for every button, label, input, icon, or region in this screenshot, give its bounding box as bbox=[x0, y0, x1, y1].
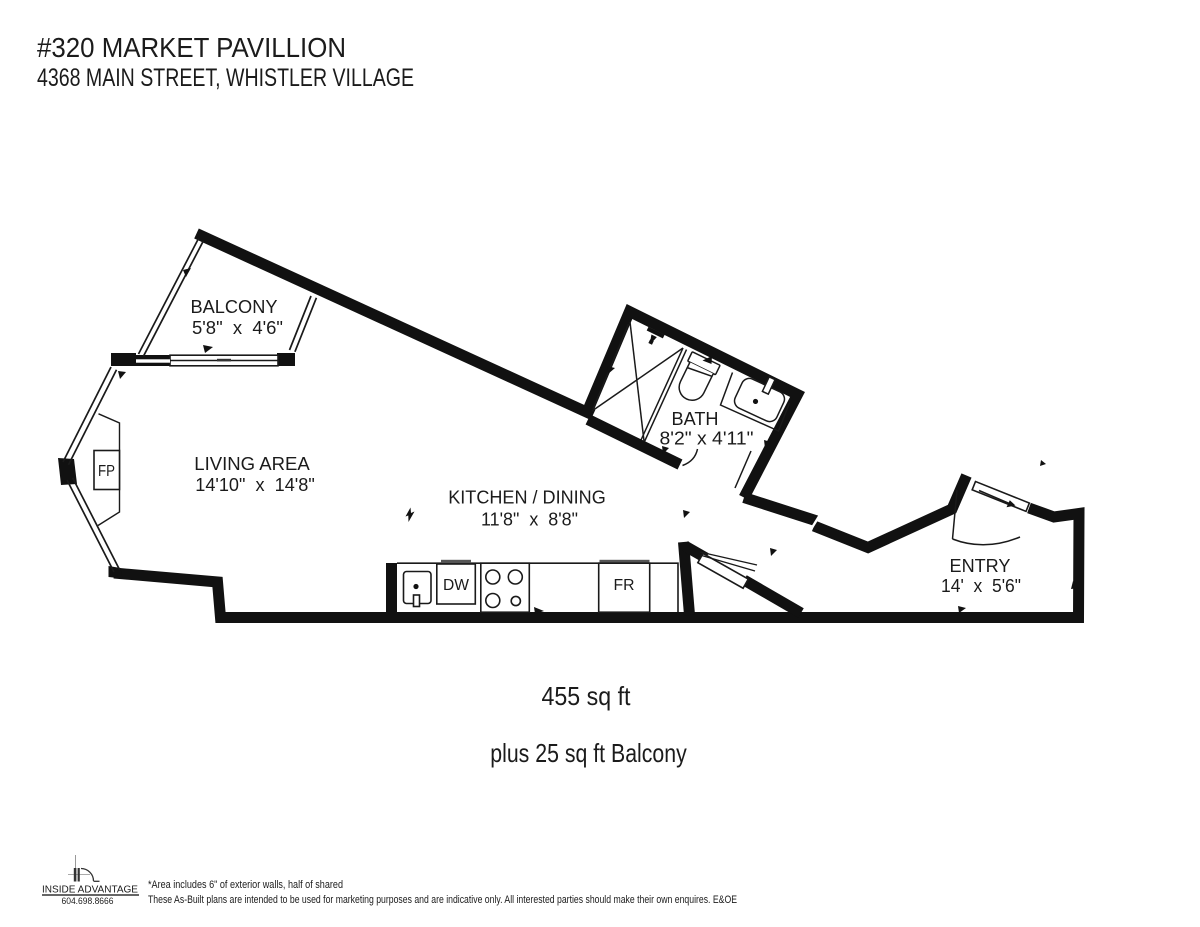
svg-text:8'2" x 4'11": 8'2" x 4'11" bbox=[660, 428, 754, 449]
svg-text:FR: FR bbox=[614, 577, 635, 594]
svg-text:LIVING AREA: LIVING AREA bbox=[194, 453, 310, 474]
svg-text:plus 25 sq ft Balcony: plus 25 sq ft Balcony bbox=[490, 738, 687, 768]
svg-text:INSIDE ADVANTAGE: INSIDE ADVANTAGE bbox=[42, 884, 138, 896]
svg-text:4368 MAIN STREET, WHISTLER VIL: 4368 MAIN STREET, WHISTLER VILLAGE bbox=[37, 64, 414, 92]
svg-text:#320 MARKET PAVILLION: #320 MARKET PAVILLION bbox=[37, 32, 346, 63]
svg-text:455 sq ft: 455 sq ft bbox=[542, 681, 632, 711]
svg-text:5'8" x 4'6": 5'8" x 4'6" bbox=[192, 317, 283, 338]
svg-text:11'8" x 8'8": 11'8" x 8'8" bbox=[481, 509, 578, 530]
svg-text:14'10" x 14'8": 14'10" x 14'8" bbox=[195, 474, 315, 495]
svg-text:BATH: BATH bbox=[672, 408, 719, 429]
svg-text:ENTRY: ENTRY bbox=[950, 555, 1011, 576]
svg-text:These As-Built plans are inten: These As-Built plans are intended to be … bbox=[148, 894, 737, 906]
svg-text:604.698.8666: 604.698.8666 bbox=[62, 896, 114, 907]
svg-text:14' x 5'6": 14' x 5'6" bbox=[941, 575, 1021, 596]
svg-text:DW: DW bbox=[443, 577, 470, 594]
svg-text:BALCONY: BALCONY bbox=[191, 296, 278, 317]
svg-text:*Area includes 6" of exterior: *Area includes 6" of exterior walls, hal… bbox=[148, 879, 343, 891]
svg-text:KITCHEN / DINING: KITCHEN / DINING bbox=[448, 487, 606, 508]
svg-text:FP: FP bbox=[98, 463, 115, 480]
